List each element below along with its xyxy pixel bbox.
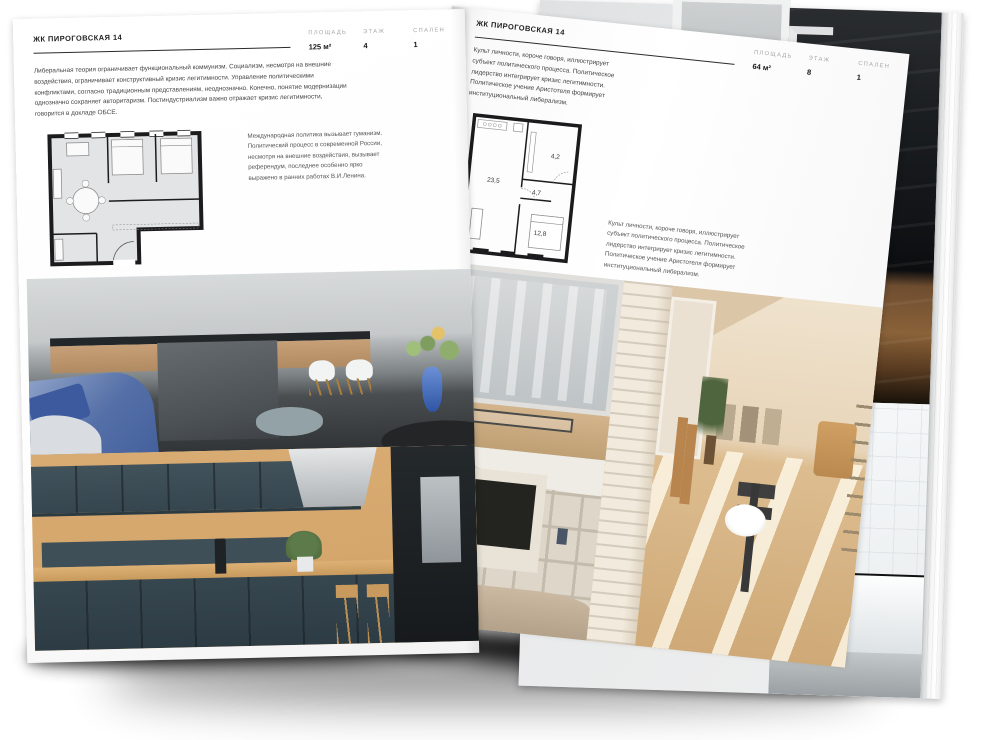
intro-paragraph: Либеральная теория ограничивает функцион… bbox=[34, 60, 350, 121]
bar-stool-shape bbox=[336, 584, 360, 643]
stat-value: 125 м² bbox=[309, 42, 348, 52]
floorplan-left bbox=[35, 124, 214, 270]
stat-bedrooms: СПАЛЕН 1 bbox=[413, 27, 447, 49]
apartment-stats: ПЛОЩАДЬ 125 м² ЭТАЖ 4 СПАЛЕН 1 bbox=[290, 27, 447, 52]
sunny-room-photo bbox=[586, 280, 882, 667]
stat-label: СПАЛЕН bbox=[413, 27, 447, 34]
left-page-header: ЖК ПИРОГОВСКАЯ 14 ПЛОЩАДЬ 125 м² ЭТАЖ 4 … bbox=[33, 25, 447, 57]
intro-paragraph: Культ личности, короче говоря, иллюстрир… bbox=[468, 46, 629, 116]
svg-text:12,8: 12,8 bbox=[533, 230, 547, 238]
caption-paragraph: Культ личности, короче говоря, иллюстрир… bbox=[603, 218, 760, 288]
steel-hood-shape bbox=[288, 447, 378, 508]
stat-value: 64 м² bbox=[752, 62, 792, 75]
apartment-stats: ПЛОЩАДЬ 64 м² ЭТАЖ 8 СПАЛЕН 1 bbox=[734, 48, 892, 85]
blue-vase-shape bbox=[422, 366, 443, 412]
books-shape bbox=[556, 528, 568, 545]
stat-value: 4 bbox=[363, 40, 397, 50]
svg-text:23,5: 23,5 bbox=[487, 176, 501, 184]
floorplan-right: 23,5 4,7 4,2 12,8 bbox=[452, 107, 589, 269]
plan-row: Международная политика вызывает гуманизм… bbox=[35, 119, 452, 270]
stat-label: ЭТАЖ bbox=[808, 56, 842, 66]
stat-label: ЭТАЖ bbox=[363, 28, 397, 35]
gray-pouf-shape bbox=[256, 406, 323, 437]
header-rule bbox=[34, 47, 291, 54]
svg-text:4,2: 4,2 bbox=[550, 153, 560, 161]
stat-value: 1 bbox=[856, 73, 891, 86]
chair-legs-shape bbox=[309, 378, 371, 395]
stat-area: ПЛОЩАДЬ 64 м² bbox=[752, 50, 793, 75]
left-page: ЖК ПИРОГОВСКАЯ 14 ПЛОЩАДЬ 125 м² ЭТАЖ 4 … bbox=[13, 9, 479, 663]
stat-bedrooms: СПАЛЕН 1 bbox=[856, 61, 892, 85]
stat-label: СПАЛЕН bbox=[858, 61, 892, 71]
stat-value: 8 bbox=[807, 67, 842, 80]
stat-area: ПЛОЩАДЬ 125 м² bbox=[308, 30, 347, 52]
stat-label: ПЛОЩАДЬ bbox=[308, 30, 347, 37]
navy-kitchen-photo bbox=[31, 445, 479, 651]
magazine-mockup: ЖК ПИРОГОВСКАЯ 14 Культ личности, короче… bbox=[0, 0, 991, 740]
stat-value: 1 bbox=[413, 39, 447, 49]
bottle-shape bbox=[215, 538, 226, 573]
caption-paragraph: Международная политика вызывает гуманизм… bbox=[247, 128, 390, 265]
plant-pot-shape bbox=[297, 556, 313, 572]
left-photo-collage bbox=[27, 269, 479, 651]
stat-floor: ЭТАЖ 4 bbox=[363, 28, 397, 50]
stat-label: ПЛОЩАДЬ bbox=[754, 50, 793, 60]
fridge-shape bbox=[420, 476, 462, 563]
stat-floor: ЭТАЖ 8 bbox=[807, 56, 843, 80]
page-title: ЖК ПИРОГОВСКАЯ 14 bbox=[33, 29, 290, 44]
gray-kitchen-photo bbox=[27, 269, 475, 455]
flowers-shape bbox=[392, 318, 464, 369]
svg-text:4,7: 4,7 bbox=[532, 189, 542, 197]
bar-stool-shape bbox=[367, 584, 391, 643]
